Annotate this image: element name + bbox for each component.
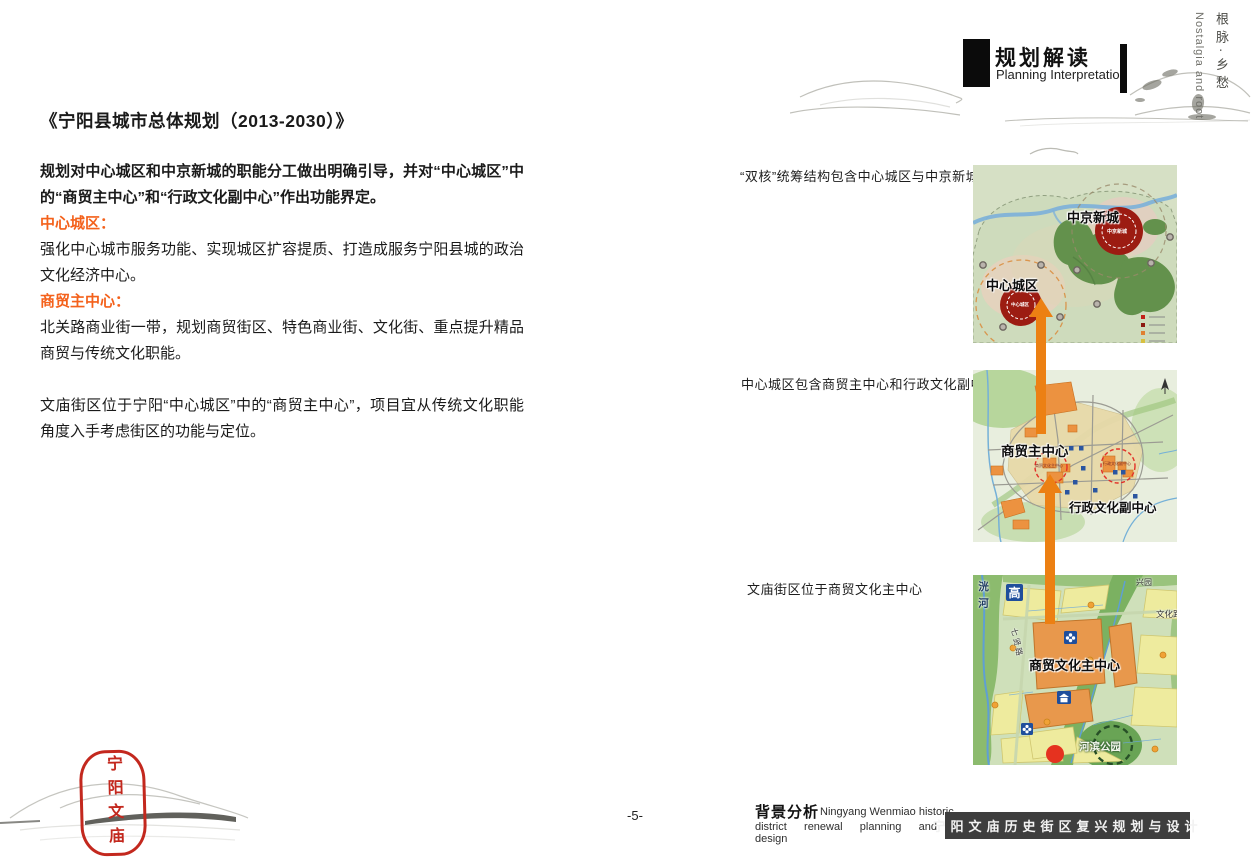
map3-center-label: 商贸文化主中心 xyxy=(1029,655,1120,674)
side-motto-cn: 根脉·乡愁 xyxy=(1212,12,1231,142)
map-central-city: 商贸主中心 行政文化副中心 商贸文化主中心 行政文化副中心 xyxy=(973,370,1177,542)
section-body-1: 强化中心城市服务功能、实现城区扩容提质、打造成服务宁阳县城的政治文化经济中心。 xyxy=(40,237,524,289)
map2-label-trade-center: 商贸主中心 xyxy=(1001,440,1069,460)
map-district-detail: 洸河 高 兴园 文化路 七贤路 商贸文化主中心 河滨公园 xyxy=(973,575,1177,765)
flow-arrow-up-1 xyxy=(1029,298,1053,434)
doc-title: 《宁阳县城市总体规划（2013-2030）》 xyxy=(40,108,524,133)
red-marker-dot xyxy=(1046,745,1064,763)
seal-text: 宁阳文庙 xyxy=(104,755,123,851)
figure-caption-3: 文庙街区位于商贸文化主中心 xyxy=(747,579,923,598)
page: 规划解读 Planning Interpretation 根脉·乡愁 Nosta… xyxy=(0,0,1251,858)
map1-core-text-left: 中心城区 xyxy=(1011,302,1029,308)
header-black-square xyxy=(963,39,990,87)
flower-icon-2 xyxy=(1021,723,1033,735)
map2-small-text-right: 行政文化副中心 xyxy=(1103,461,1131,467)
article: 《宁阳县城市总体规划（2013-2030）》 规划对中心城区和中京新城的职能分工… xyxy=(40,108,524,445)
temple-icon xyxy=(1057,691,1071,704)
page-number: -5- xyxy=(620,808,650,823)
small-ink-stroke xyxy=(1028,145,1080,158)
article-conclusion: 文庙街区位于宁阳“中心城区”中的“商贸主中心”，项目宜从传统文化职能角度入手考虑… xyxy=(40,393,524,445)
map1-label-center-city: 中心城区 xyxy=(986,275,1038,294)
footer-project-bar: 宁阳文庙历史街区复兴规划与设计 xyxy=(945,812,1190,839)
footer-en-line2: district renewal planning and design xyxy=(755,821,937,845)
footer-project-title: 宁阳文庙历史街区复兴规划与设计 xyxy=(933,816,1203,835)
side-motto-en: Nostalgia and root xyxy=(1193,12,1205,177)
map3-highway-sign: 高 xyxy=(1006,584,1023,601)
map1-core-text-right: 中京新城 xyxy=(1107,228,1127,235)
section-body-2: 北关路商业街一带，规划商贸街区、特色商业街、文化街、重点提升精品商贸与传统文化职… xyxy=(40,315,524,367)
section-heading-1: 中心城区： xyxy=(40,211,524,237)
page-section-subtitle: Planning Interpretation xyxy=(996,67,1127,82)
map2-label-admin-center: 行政文化副中心 xyxy=(1069,497,1157,516)
flower-icon-1 xyxy=(1064,631,1077,644)
footer-section-title: 背景分析 xyxy=(755,801,819,822)
figure-caption-1: “双核”统筹结构包含中心城区与中京新城 xyxy=(740,166,979,185)
map3-park-label: 河滨公园 xyxy=(1079,739,1121,754)
flow-arrow-up-2 xyxy=(1038,474,1062,624)
map3-corner-label: 兴园 xyxy=(1136,577,1152,588)
map1-label-zhongjing: 中京新城 xyxy=(1067,207,1119,226)
map3-river-label: 洸河 xyxy=(976,581,991,614)
map3-wenhua-road-label: 文化路 xyxy=(1156,608,1177,620)
article-intro: 规划对中心城区和中京新城的职能分工做出明确引导，并对“中心城区”中的“商贸主中心… xyxy=(40,159,524,211)
red-seal: 宁阳文庙 xyxy=(79,749,148,857)
section-heading-2: 商贸主中心： xyxy=(40,289,524,315)
map-regional-dual-core: 中京新城 中心城区 中京新城 中心城区 xyxy=(973,165,1177,343)
map1-graphic xyxy=(973,165,1177,343)
header-vertical-bar xyxy=(1120,44,1127,93)
map2-small-text-left: 商贸文化主中心 xyxy=(1035,463,1063,469)
figure-caption-2: 中心城区包含商贸主中心和行政文化副中心 xyxy=(741,374,998,393)
